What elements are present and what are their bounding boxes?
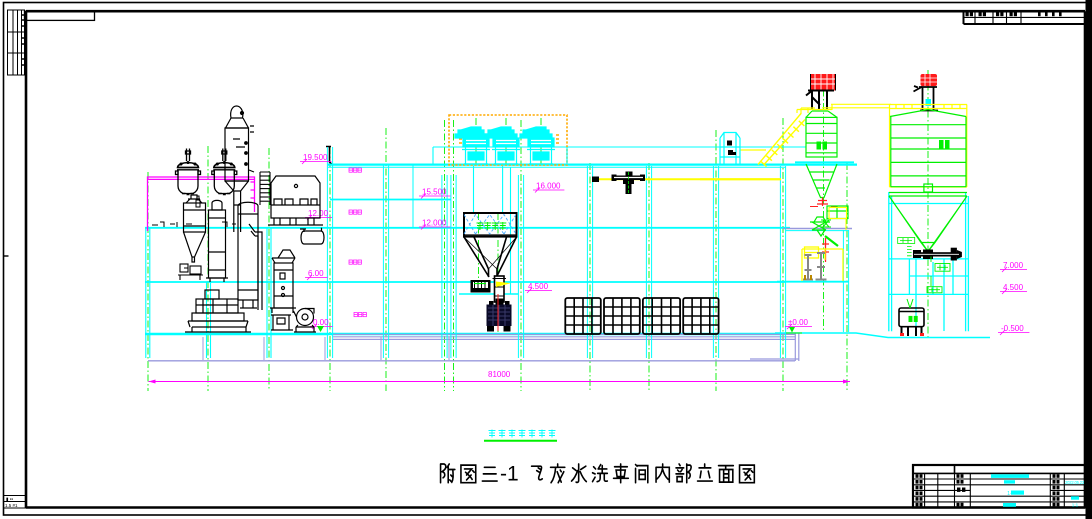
svg-text:16.000: 16.000 xyxy=(536,182,561,191)
svg-text:1:1: 1:1 xyxy=(1072,503,1079,508)
svg-text:1.5 #1: 1.5 #1 xyxy=(5,503,18,508)
svg-text:4.500: 4.500 xyxy=(1003,283,1024,292)
svg-text:12.00: 12.00 xyxy=(308,209,329,218)
svg-text:4.500: 4.500 xyxy=(528,282,549,291)
svg-text:7.000: 7.000 xyxy=(1003,261,1024,270)
svg-text:19.500: 19.500 xyxy=(303,153,328,162)
svg-text:-0.500: -0.500 xyxy=(1001,324,1024,333)
svg-text:▮ ▪▪: ▮ ▪▪ xyxy=(6,497,13,502)
svg-text:12.000: 12.000 xyxy=(422,219,447,228)
svg-text:±0.00: ±0.00 xyxy=(788,318,809,327)
svg-text:-1: -1 xyxy=(500,463,519,486)
svg-text:81000: 81000 xyxy=(488,370,511,379)
svg-text:2022.05.23: 2022.05.23 xyxy=(1065,480,1085,485)
svg-text:15.500: 15.500 xyxy=(422,188,447,197)
